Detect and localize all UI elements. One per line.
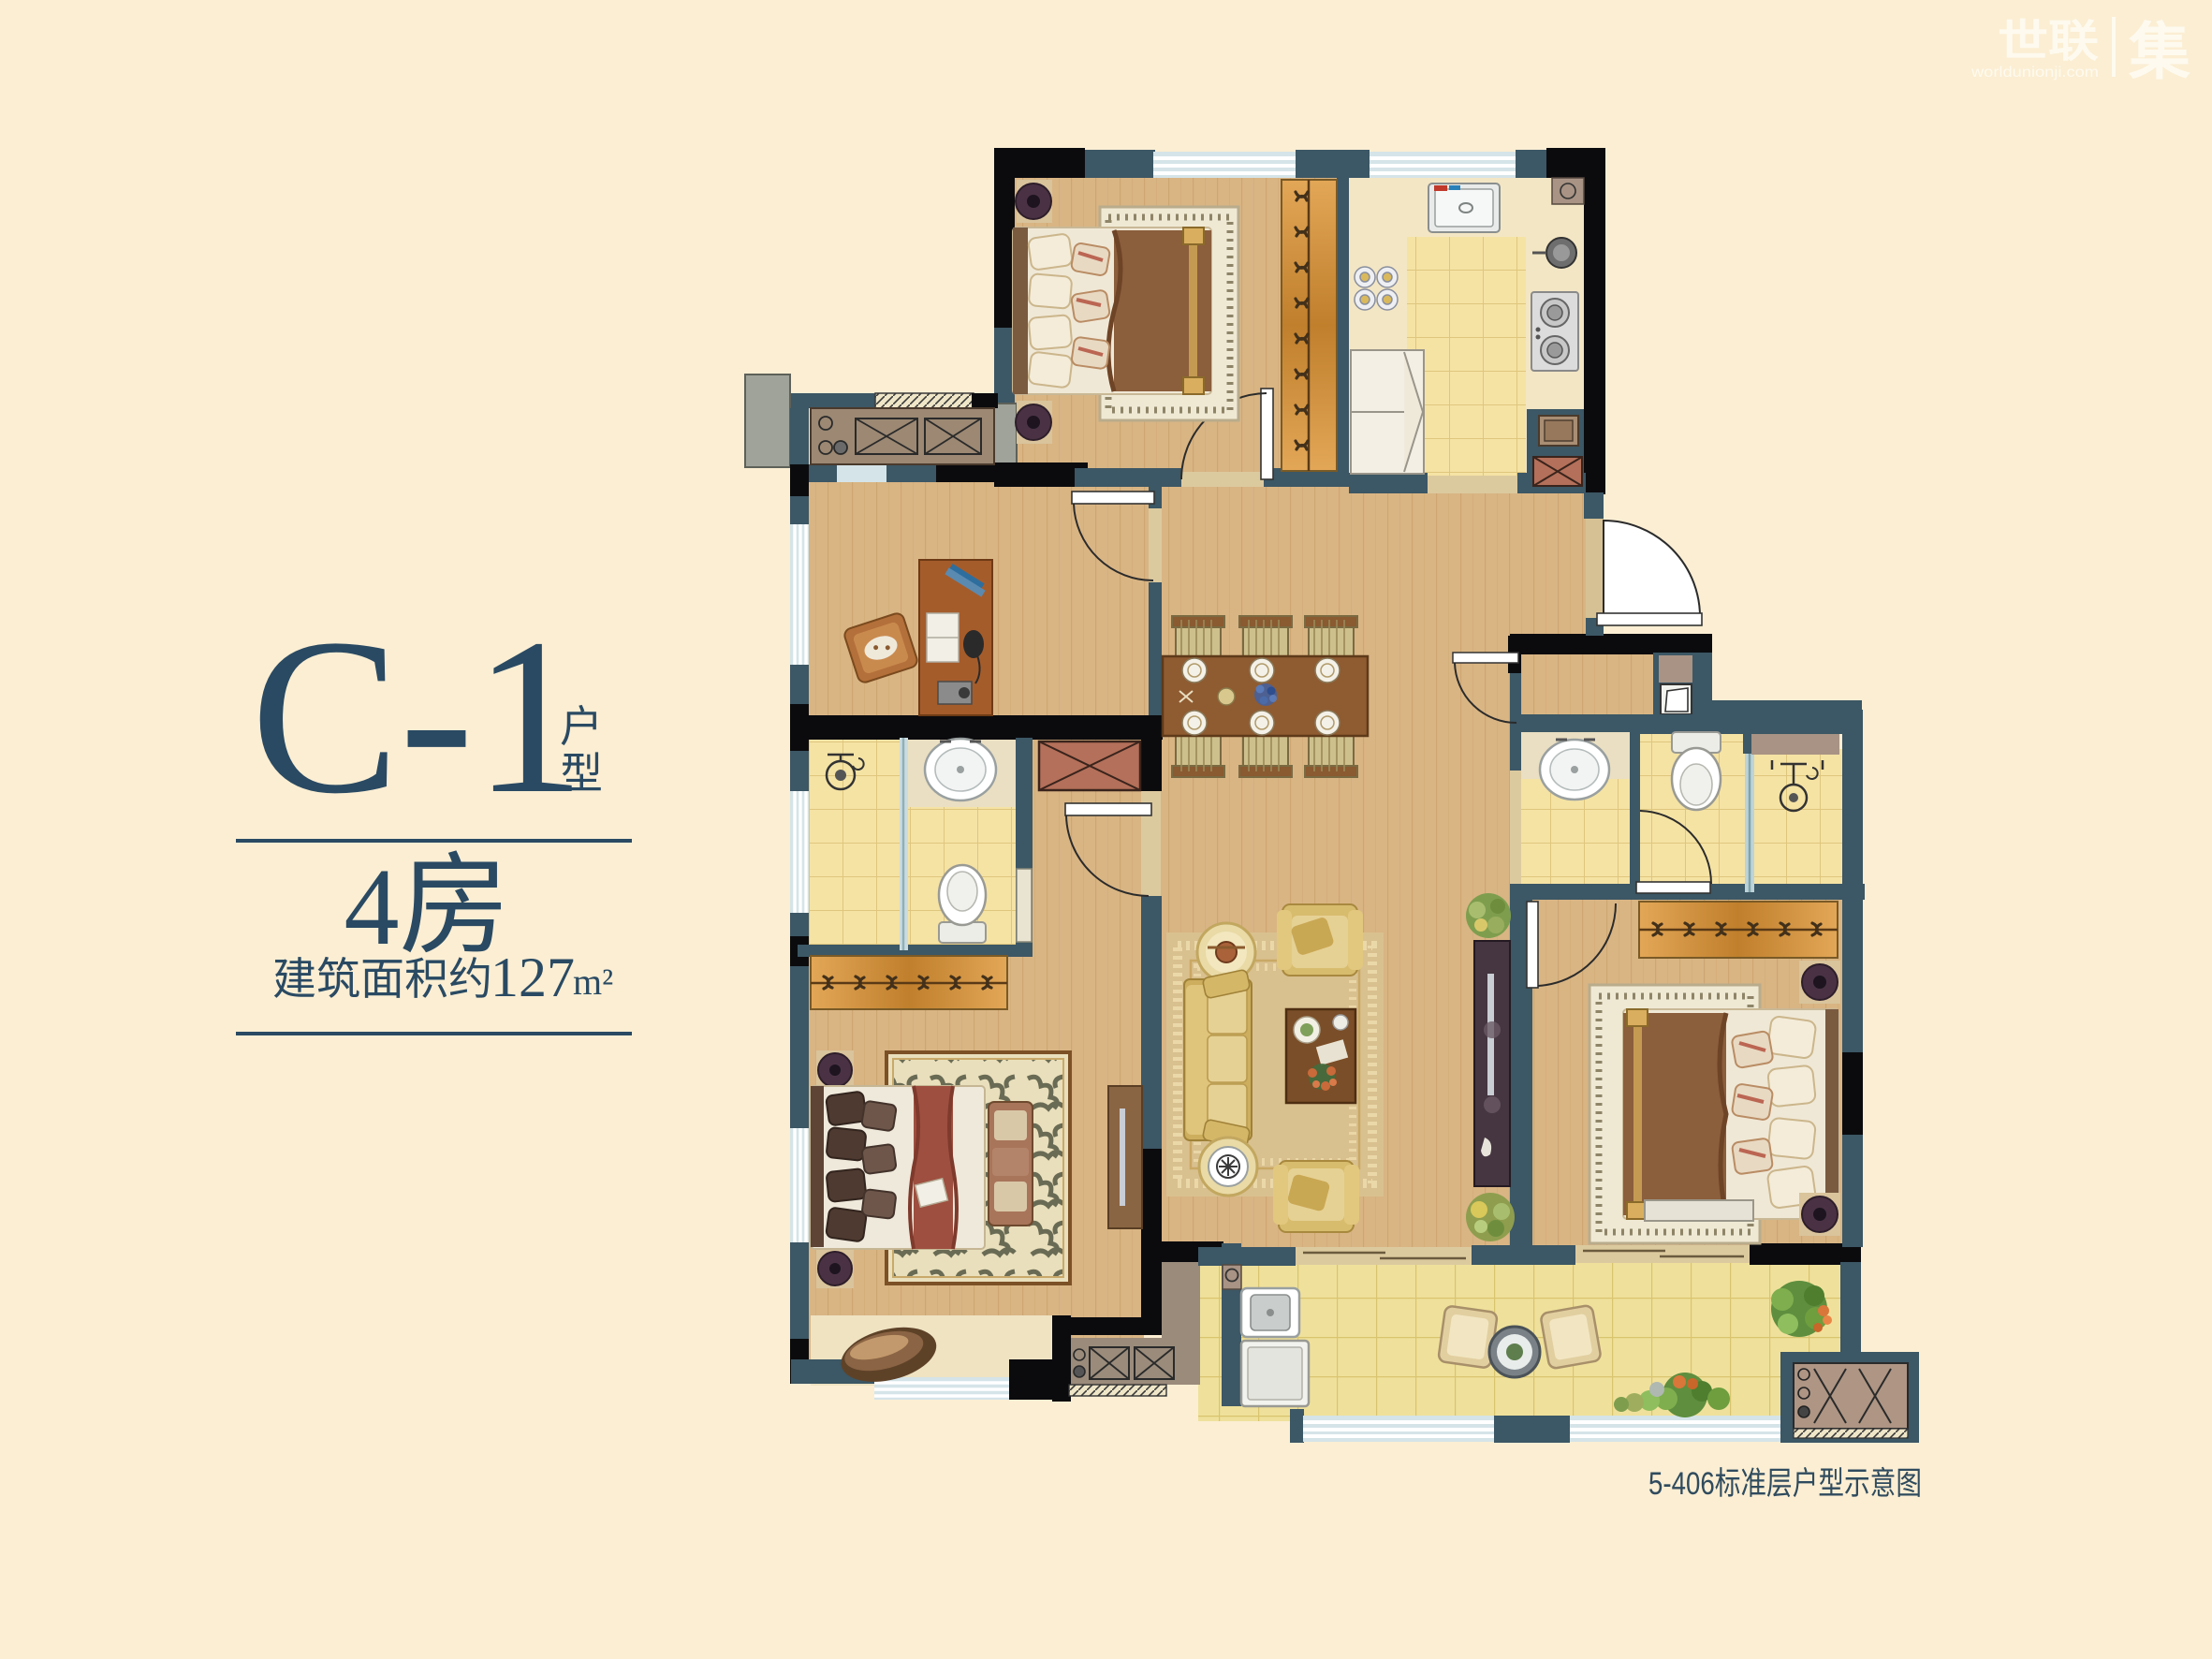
svg-text:worldunionji.com: worldunionji.com	[1970, 65, 2099, 81]
svg-text:4房: 4房	[344, 845, 509, 968]
svg-text:建筑面积约: 建筑面积约	[272, 956, 492, 1005]
svg-text:5-406标准层户型示意图: 5-406标准层户型示意图	[1648, 1466, 1922, 1502]
svg-text:户: 户	[560, 703, 603, 751]
svg-text:集: 集	[2128, 17, 2190, 86]
svg-text:m²: m²	[573, 961, 613, 1003]
svg-text:C-1: C-1	[251, 594, 585, 840]
svg-text:世联: 世联	[1998, 16, 2099, 66]
svg-text:型: 型	[560, 750, 603, 798]
svg-text:127: 127	[491, 947, 575, 1008]
